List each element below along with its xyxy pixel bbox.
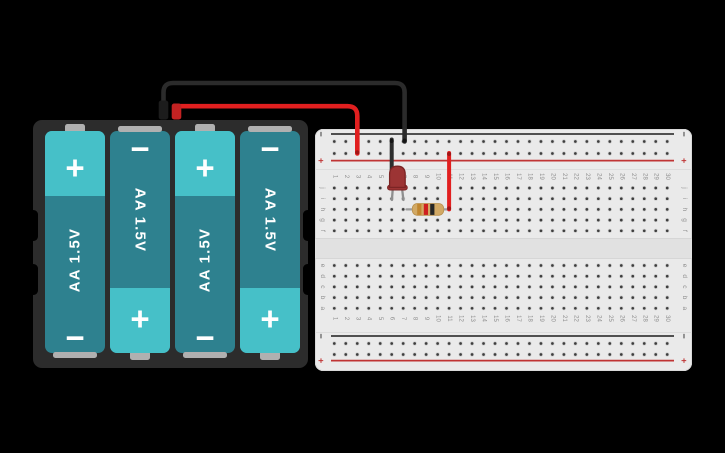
breadboard-hole[interactable] [401, 296, 404, 299]
breadboard-hole[interactable] [539, 275, 542, 278]
breadboard-hole[interactable] [516, 140, 519, 143]
breadboard-hole[interactable] [516, 275, 519, 278]
breadboard-hole[interactable] [516, 296, 519, 299]
breadboard-hole[interactable] [401, 353, 404, 356]
breadboard-hole[interactable] [643, 186, 646, 189]
breadboard-hole[interactable] [356, 285, 359, 288]
breadboard-hole[interactable] [654, 208, 657, 211]
breadboard-hole[interactable] [643, 296, 646, 299]
breadboard-hole[interactable] [482, 197, 485, 200]
breadboard-hole[interactable] [562, 342, 565, 345]
breadboard-hole[interactable] [356, 275, 359, 278]
breadboard-hole[interactable] [608, 296, 611, 299]
breadboard-hole[interactable] [666, 186, 669, 189]
breadboard-hole[interactable] [493, 275, 496, 278]
breadboard-hole[interactable] [344, 296, 347, 299]
breadboard-hole[interactable] [424, 218, 427, 221]
breadboard-hole[interactable] [516, 307, 519, 310]
breadboard-hole[interactable] [608, 186, 611, 189]
breadboard-hole[interactable] [574, 140, 577, 143]
breadboard-hole[interactable] [482, 186, 485, 189]
breadboard-hole[interactable] [654, 285, 657, 288]
breadboard-hole[interactable] [424, 296, 427, 299]
breadboard-hole[interactable] [631, 140, 634, 143]
breadboard-hole[interactable] [333, 296, 336, 299]
breadboard-hole[interactable] [436, 264, 439, 267]
breadboard-hole[interactable] [539, 186, 542, 189]
breadboard-hole[interactable] [470, 307, 473, 310]
breadboard-hole[interactable] [344, 186, 347, 189]
breadboard-hole[interactable] [597, 140, 600, 143]
breadboard-hole[interactable] [631, 186, 634, 189]
breadboard-hole[interactable] [551, 229, 554, 232]
breadboard-hole[interactable] [470, 353, 473, 356]
breadboard-hole[interactable] [356, 264, 359, 267]
breadboard-hole[interactable] [551, 353, 554, 356]
breadboard-hole[interactable] [551, 285, 554, 288]
breadboard-hole[interactable] [367, 208, 370, 211]
breadboard-hole[interactable] [493, 296, 496, 299]
breadboard-hole[interactable] [608, 353, 611, 356]
breadboard-hole[interactable] [562, 152, 565, 155]
breadboard-hole[interactable] [413, 285, 416, 288]
resistor[interactable] [407, 204, 450, 216]
breadboard-hole[interactable] [424, 186, 427, 189]
breadboard-hole[interactable] [539, 264, 542, 267]
breadboard-hole[interactable] [528, 218, 531, 221]
breadboard-hole[interactable] [470, 285, 473, 288]
breadboard-hole[interactable] [413, 342, 416, 345]
breadboard-hole[interactable] [585, 264, 588, 267]
breadboard-hole[interactable] [459, 152, 462, 155]
breadboard-hole[interactable] [631, 197, 634, 200]
breadboard-hole[interactable] [631, 208, 634, 211]
breadboard-hole[interactable] [333, 186, 336, 189]
breadboard-hole[interactable] [470, 152, 473, 155]
breadboard-hole[interactable] [447, 353, 450, 356]
breadboard-hole[interactable] [413, 353, 416, 356]
breadboard-hole[interactable] [401, 307, 404, 310]
breadboard-hole[interactable] [447, 285, 450, 288]
breadboard-hole[interactable] [367, 197, 370, 200]
breadboard-hole[interactable] [562, 296, 565, 299]
breadboard-hole[interactable] [367, 264, 370, 267]
breadboard-hole[interactable] [482, 275, 485, 278]
breadboard-hole[interactable] [482, 342, 485, 345]
breadboard-hole[interactable] [470, 296, 473, 299]
breadboard-hole[interactable] [620, 197, 623, 200]
breadboard-hole[interactable] [597, 218, 600, 221]
breadboard-hole[interactable] [367, 296, 370, 299]
breadboard-hole[interactable] [436, 353, 439, 356]
breadboard-hole[interactable] [597, 296, 600, 299]
breadboard-hole[interactable] [493, 353, 496, 356]
breadboard-hole[interactable] [585, 285, 588, 288]
breadboard-hole[interactable] [528, 152, 531, 155]
breadboard-hole[interactable] [436, 296, 439, 299]
breadboard-hole[interactable] [585, 208, 588, 211]
breadboard-hole[interactable] [620, 264, 623, 267]
breadboard-hole[interactable] [666, 218, 669, 221]
breadboard-hole[interactable] [608, 197, 611, 200]
breadboard-hole[interactable] [643, 353, 646, 356]
breadboard-hole[interactable] [551, 307, 554, 310]
breadboard-hole[interactable] [585, 140, 588, 143]
breadboard-hole[interactable] [367, 152, 370, 155]
breadboard-hole[interactable] [528, 186, 531, 189]
breadboard-hole[interactable] [344, 307, 347, 310]
breadboard-hole[interactable] [574, 275, 577, 278]
led[interactable] [388, 166, 408, 200]
positive-rail-jumper-wire[interactable] [447, 152, 451, 210]
breadboard-hole[interactable] [643, 152, 646, 155]
breadboard-hole[interactable] [436, 342, 439, 345]
breadboard-hole[interactable] [516, 229, 519, 232]
breadboard-hole[interactable] [379, 197, 382, 200]
breadboard-hole[interactable] [562, 140, 565, 143]
breadboard-hole[interactable] [344, 140, 347, 143]
breadboard-hole[interactable] [482, 264, 485, 267]
breadboard-hole[interactable] [413, 275, 416, 278]
breadboard-hole[interactable] [666, 264, 669, 267]
breadboard-hole[interactable] [436, 275, 439, 278]
breadboard-hole[interactable] [631, 152, 634, 155]
breadboard-hole[interactable] [551, 208, 554, 211]
breadboard-hole[interactable] [597, 353, 600, 356]
breadboard-hole[interactable] [436, 140, 439, 143]
breadboard-hole[interactable] [620, 152, 623, 155]
breadboard-hole[interactable] [344, 275, 347, 278]
breadboard-hole[interactable] [539, 197, 542, 200]
breadboard-hole[interactable] [379, 229, 382, 232]
breadboard-hole[interactable] [631, 218, 634, 221]
breadboard-hole[interactable] [493, 229, 496, 232]
breadboard-hole[interactable] [424, 229, 427, 232]
breadboard-hole[interactable] [436, 186, 439, 189]
breadboard-hole[interactable] [436, 152, 439, 155]
breadboard-hole[interactable] [459, 296, 462, 299]
breadboard-hole[interactable] [367, 218, 370, 221]
breadboard-hole[interactable] [356, 218, 359, 221]
breadboard-hole[interactable] [528, 296, 531, 299]
breadboard-hole[interactable] [620, 229, 623, 232]
breadboard-hole[interactable] [608, 342, 611, 345]
breadboard-hole[interactable] [585, 186, 588, 189]
breadboard-hole[interactable] [666, 229, 669, 232]
breadboard-hole[interactable] [333, 218, 336, 221]
breadboard-hole[interactable] [551, 152, 554, 155]
breadboard-hole[interactable] [390, 353, 393, 356]
breadboard-hole[interactable] [424, 275, 427, 278]
breadboard-hole[interactable] [574, 264, 577, 267]
breadboard-hole[interactable] [436, 218, 439, 221]
breadboard-hole[interactable] [505, 208, 508, 211]
breadboard-hole[interactable] [666, 140, 669, 143]
breadboard-hole[interactable] [585, 296, 588, 299]
breadboard-hole[interactable] [447, 307, 450, 310]
breadboard-hole[interactable] [470, 275, 473, 278]
breadboard-hole[interactable] [333, 307, 336, 310]
breadboard-hole[interactable] [436, 307, 439, 310]
breadboard-hole[interactable] [539, 152, 542, 155]
breadboard-hole[interactable] [505, 342, 508, 345]
breadboard-hole[interactable] [413, 264, 416, 267]
breadboard-hole[interactable] [654, 229, 657, 232]
breadboard-hole[interactable] [390, 285, 393, 288]
breadboard-hole[interactable] [505, 353, 508, 356]
breadboard-hole[interactable] [620, 275, 623, 278]
breadboard-hole[interactable] [401, 275, 404, 278]
breadboard-hole[interactable] [551, 264, 554, 267]
breadboard-hole[interactable] [470, 342, 473, 345]
breadboard-hole[interactable] [379, 342, 382, 345]
breadboard-hole[interactable] [585, 307, 588, 310]
breadboard-hole[interactable] [356, 208, 359, 211]
breadboard-hole[interactable] [390, 307, 393, 310]
breadboard-hole[interactable] [608, 208, 611, 211]
breadboard-hole[interactable] [539, 208, 542, 211]
breadboard-hole[interactable] [333, 229, 336, 232]
breadboard-hole[interactable] [631, 353, 634, 356]
breadboard-hole[interactable] [379, 186, 382, 189]
breadboard-hole[interactable] [539, 229, 542, 232]
breadboard-hole[interactable] [333, 140, 336, 143]
breadboard-hole[interactable] [643, 275, 646, 278]
breadboard-hole[interactable] [516, 353, 519, 356]
breadboard-hole[interactable] [643, 140, 646, 143]
breadboard-hole[interactable] [574, 353, 577, 356]
breadboard-hole[interactable] [551, 140, 554, 143]
breadboard-hole[interactable] [654, 275, 657, 278]
breadboard-hole[interactable] [367, 342, 370, 345]
breadboard-hole[interactable] [390, 264, 393, 267]
breadboard-hole[interactable] [539, 353, 542, 356]
breadboard-hole[interactable] [574, 218, 577, 221]
breadboard-hole[interactable] [551, 218, 554, 221]
breadboard-hole[interactable] [551, 186, 554, 189]
breadboard-hole[interactable] [585, 152, 588, 155]
breadboard-hole[interactable] [562, 275, 565, 278]
breadboard-hole[interactable] [654, 307, 657, 310]
breadboard-hole[interactable] [447, 342, 450, 345]
breadboard-hole[interactable] [344, 208, 347, 211]
breadboard-hole[interactable] [562, 229, 565, 232]
breadboard-hole[interactable] [608, 229, 611, 232]
breadboard-hole[interactable] [562, 285, 565, 288]
breadboard-hole[interactable] [562, 353, 565, 356]
breadboard-hole[interactable] [447, 218, 450, 221]
breadboard-hole[interactable] [631, 307, 634, 310]
breadboard-hole[interactable] [516, 208, 519, 211]
breadboard-hole[interactable] [356, 296, 359, 299]
breadboard-hole[interactable] [597, 275, 600, 278]
breadboard-hole[interactable] [459, 186, 462, 189]
breadboard-hole[interactable] [643, 264, 646, 267]
breadboard-hole[interactable] [551, 197, 554, 200]
breadboard-hole[interactable] [379, 208, 382, 211]
breadboard-hole[interactable] [424, 353, 427, 356]
breadboard-hole[interactable] [574, 152, 577, 155]
breadboard-hole[interactable] [390, 296, 393, 299]
breadboard-hole[interactable] [344, 197, 347, 200]
breadboard-hole[interactable] [643, 229, 646, 232]
breadboard-hole[interactable] [470, 264, 473, 267]
breadboard-hole[interactable] [505, 152, 508, 155]
breadboard-hole[interactable] [551, 342, 554, 345]
breadboard-hole[interactable] [597, 208, 600, 211]
breadboard-hole[interactable] [597, 197, 600, 200]
breadboard-hole[interactable] [585, 218, 588, 221]
breadboard-hole[interactable] [505, 275, 508, 278]
breadboard-hole[interactable] [654, 197, 657, 200]
breadboard-hole[interactable] [333, 208, 336, 211]
breadboard-hole[interactable] [447, 264, 450, 267]
breadboard-hole[interactable] [367, 229, 370, 232]
breadboard-hole[interactable] [493, 264, 496, 267]
breadboard-hole[interactable] [516, 218, 519, 221]
breadboard-hole[interactable] [424, 264, 427, 267]
breadboard-hole[interactable] [666, 208, 669, 211]
breadboard-hole[interactable] [436, 197, 439, 200]
breadboard-hole[interactable] [528, 307, 531, 310]
breadboard-hole[interactable] [505, 140, 508, 143]
breadboard-hole[interactable] [608, 264, 611, 267]
breadboard-hole[interactable] [493, 197, 496, 200]
breadboard-hole[interactable] [459, 342, 462, 345]
breadboard-hole[interactable] [459, 218, 462, 221]
breadboard-hole[interactable] [551, 275, 554, 278]
breadboard-hole[interactable] [379, 152, 382, 155]
breadboard-hole[interactable] [367, 140, 370, 143]
breadboard-hole[interactable] [505, 264, 508, 267]
breadboard-hole[interactable] [528, 264, 531, 267]
breadboard-hole[interactable] [459, 264, 462, 267]
breadboard-hole[interactable] [493, 342, 496, 345]
breadboard-hole[interactable] [459, 307, 462, 310]
breadboard-hole[interactable] [459, 285, 462, 288]
battery-positive-wire[interactable] [177, 106, 360, 154]
breadboard-hole[interactable] [620, 296, 623, 299]
breadboard-hole[interactable] [585, 275, 588, 278]
breadboard-hole[interactable] [505, 285, 508, 288]
breadboard-hole[interactable] [493, 140, 496, 143]
breadboard-hole[interactable] [528, 342, 531, 345]
breadboard-hole[interactable] [482, 140, 485, 143]
breadboard-hole[interactable] [608, 285, 611, 288]
breadboard-hole[interactable] [390, 342, 393, 345]
breadboard-hole[interactable] [413, 296, 416, 299]
breadboard-hole[interactable] [666, 197, 669, 200]
breadboard-hole[interactable] [401, 264, 404, 267]
breadboard-hole[interactable] [528, 208, 531, 211]
breadboard-hole[interactable] [470, 140, 473, 143]
breadboard-hole[interactable] [470, 197, 473, 200]
breadboard-hole[interactable] [401, 152, 404, 155]
breadboard-hole[interactable] [356, 353, 359, 356]
breadboard-hole[interactable] [666, 353, 669, 356]
breadboard-hole[interactable] [482, 152, 485, 155]
breadboard-hole[interactable] [516, 342, 519, 345]
breadboard-hole[interactable] [620, 342, 623, 345]
breadboard-hole[interactable] [493, 307, 496, 310]
breadboard-hole[interactable] [539, 296, 542, 299]
breadboard-hole[interactable] [666, 296, 669, 299]
breadboard-hole[interactable] [470, 186, 473, 189]
positive-terminal-plug[interactable] [172, 104, 182, 120]
breadboard-hole[interactable] [539, 140, 542, 143]
breadboard-hole[interactable] [379, 218, 382, 221]
breadboard-hole[interactable] [436, 285, 439, 288]
breadboard-hole[interactable] [643, 197, 646, 200]
breadboard-hole[interactable] [539, 307, 542, 310]
breadboard-hole[interactable] [459, 140, 462, 143]
breadboard-hole[interactable] [493, 208, 496, 211]
breadboard-hole[interactable] [379, 140, 382, 143]
breadboard-hole[interactable] [447, 296, 450, 299]
breadboard-hole[interactable] [459, 208, 462, 211]
breadboard-hole[interactable] [401, 218, 404, 221]
breadboard-hole[interactable] [528, 285, 531, 288]
breadboard-hole[interactable] [528, 197, 531, 200]
breadboard-hole[interactable] [608, 152, 611, 155]
breadboard-hole[interactable] [643, 218, 646, 221]
breadboard-hole[interactable] [597, 307, 600, 310]
breadboard-hole[interactable] [470, 208, 473, 211]
breadboard-hole[interactable] [597, 186, 600, 189]
breadboard-hole[interactable] [597, 229, 600, 232]
breadboard-hole[interactable] [459, 275, 462, 278]
breadboard-hole[interactable] [574, 296, 577, 299]
breadboard-hole[interactable] [631, 264, 634, 267]
breadboard-hole[interactable] [574, 197, 577, 200]
breadboard-hole[interactable] [356, 229, 359, 232]
breadboard-hole[interactable] [539, 342, 542, 345]
breadboard-hole[interactable] [654, 186, 657, 189]
breadboard-hole[interactable] [631, 342, 634, 345]
breadboard-hole[interactable] [344, 264, 347, 267]
breadboard-hole[interactable] [367, 307, 370, 310]
breadboard-hole[interactable] [585, 229, 588, 232]
breadboard-hole[interactable] [654, 296, 657, 299]
breadboard-hole[interactable] [585, 342, 588, 345]
breadboard-hole[interactable] [666, 285, 669, 288]
breadboard-hole[interactable] [631, 296, 634, 299]
breadboard-hole[interactable] [597, 152, 600, 155]
breadboard-hole[interactable] [562, 264, 565, 267]
breadboard-hole[interactable] [608, 275, 611, 278]
breadboard-hole[interactable] [356, 197, 359, 200]
breadboard-hole[interactable] [459, 353, 462, 356]
breadboard-hole[interactable] [413, 197, 416, 200]
breadboard-hole[interactable] [390, 208, 393, 211]
breadboard-hole[interactable] [390, 229, 393, 232]
breadboard-hole[interactable] [608, 307, 611, 310]
breadboard-hole[interactable] [562, 307, 565, 310]
breadboard-hole[interactable] [597, 342, 600, 345]
breadboard-hole[interactable] [516, 264, 519, 267]
breadboard-hole[interactable] [516, 285, 519, 288]
breadboard-hole[interactable] [654, 218, 657, 221]
breadboard-hole[interactable] [401, 342, 404, 345]
breadboard-hole[interactable] [367, 285, 370, 288]
breadboard-hole[interactable] [424, 285, 427, 288]
breadboard-hole[interactable] [608, 140, 611, 143]
breadboard-hole[interactable] [666, 342, 669, 345]
breadboard-hole[interactable] [413, 186, 416, 189]
breadboard-hole[interactable] [333, 264, 336, 267]
breadboard-hole[interactable] [631, 285, 634, 288]
breadboard-hole[interactable] [482, 353, 485, 356]
